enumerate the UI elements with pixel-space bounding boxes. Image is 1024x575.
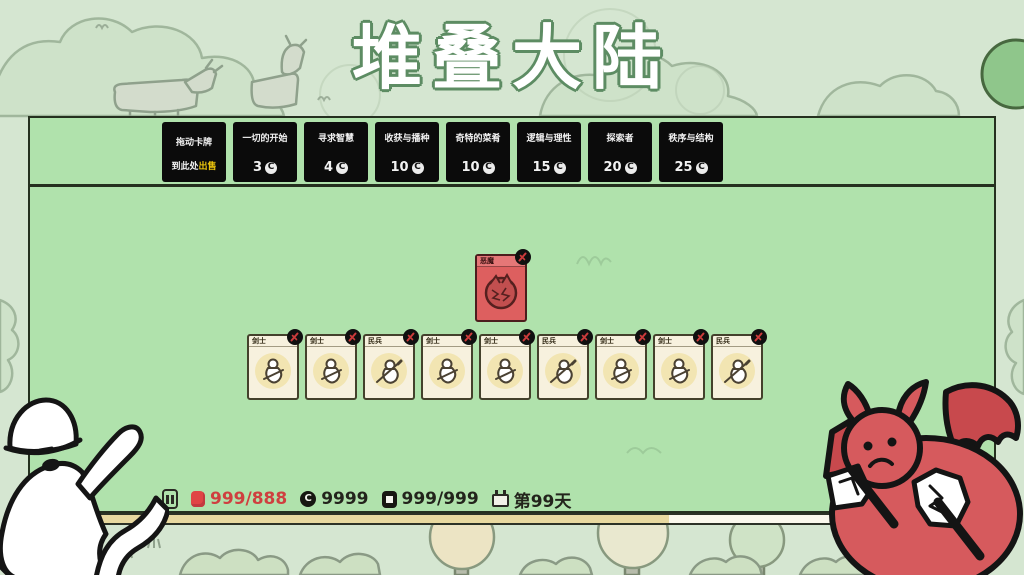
pack-shelf: 拖动卡牌 到此处出售 一切的开始 3C 寻求智慧 4C 收获与播种 10C 奇特… — [162, 122, 723, 182]
swordsman-card-art — [313, 353, 349, 389]
pack-cost-value: 25 — [674, 160, 692, 175]
unit-card-swordsman[interactable]: 剑士 — [595, 334, 647, 400]
coin-letter: C — [485, 163, 492, 172]
unit-card-label: 剑士 — [426, 337, 440, 345]
coin-icon: C — [483, 162, 495, 174]
unit-card-swordsman[interactable]: 剑士 — [305, 334, 357, 400]
enemy-card[interactable]: 恶魔 — [475, 254, 527, 322]
coin-icon: C — [300, 491, 316, 507]
day-indicator: 第99天 — [492, 487, 572, 512]
food-count: 999/888 — [210, 489, 287, 509]
card-capacity-icon-inner — [386, 496, 393, 503]
coin-icon: C — [696, 162, 708, 174]
attack-badge-icon — [635, 329, 651, 345]
pack-name: 寻求智慧 — [318, 131, 354, 144]
demon-character — [818, 374, 1024, 575]
unit-card-militia[interactable]: 民兵 — [363, 334, 415, 400]
day-counter: 第99天 — [514, 487, 572, 512]
board-doodle — [575, 248, 615, 268]
sell-word: 出售 — [199, 162, 217, 172]
attack-badge-icon — [577, 329, 593, 345]
pack-cost-value: 10 — [390, 160, 408, 175]
pack-cost-value: 10 — [461, 160, 479, 175]
pack-cost: 25C — [674, 160, 707, 175]
calendar-icon — [492, 494, 509, 507]
militia-card-art — [545, 353, 581, 389]
militia-card-art — [371, 353, 407, 389]
unit-card-swordsman[interactable]: 剑士 — [653, 334, 705, 400]
pack-seeking-wisdom[interactable]: 寻求智慧 4C — [304, 122, 368, 182]
unit-card-label: 剑士 — [484, 337, 498, 345]
sell-area[interactable]: 拖动卡牌 到此处出售 — [162, 122, 226, 182]
shelf-divider — [28, 184, 996, 187]
game-title: 堆叠大陆 — [0, 2, 1024, 103]
attack-badge-icon — [751, 329, 767, 345]
pack-order-and-structure[interactable]: 秩序与结构 25C — [659, 122, 723, 182]
pack-explorers[interactable]: 探索者 20C — [588, 122, 652, 182]
pack-cost: 20C — [603, 160, 636, 175]
unit-card-swordsman[interactable]: 剑士 — [479, 334, 531, 400]
coin-icon: C — [336, 162, 348, 174]
pack-cost-value: 4 — [324, 160, 333, 175]
pack-humble-beginnings[interactable]: 一切的开始 3C — [233, 122, 297, 182]
unit-card-swordsman[interactable]: 剑士 — [421, 334, 473, 400]
pack-name: 奇特的菜肴 — [455, 131, 500, 144]
militia-card-art — [719, 353, 755, 389]
unit-card-label: 剑士 — [310, 337, 324, 345]
coin-letter: C — [339, 163, 346, 172]
coin-letter: C — [627, 163, 634, 172]
coin-letter: C — [305, 494, 312, 504]
coin-letter: C — [268, 163, 275, 172]
demon-card-art — [482, 270, 520, 314]
unit-card-row: 剑士 剑士 民兵 剑士 — [247, 334, 763, 400]
swordsman-card-art — [255, 353, 291, 389]
villager-character — [0, 388, 169, 575]
pack-cost-value: 3 — [253, 160, 262, 175]
unit-card-militia[interactable]: 民兵 — [537, 334, 589, 400]
attack-badge-icon — [403, 329, 419, 345]
pack-cost-value: 15 — [532, 160, 550, 175]
pack-name: 秩序与结构 — [668, 131, 713, 144]
pack-cost-value: 20 — [603, 160, 621, 175]
coin-indicator: C9999 — [300, 489, 368, 509]
pack-curious-cuisine[interactable]: 奇特的菜肴 10C — [446, 122, 510, 182]
unit-card-label: 民兵 — [368, 337, 382, 345]
pack-cost: 10C — [390, 160, 423, 175]
attack-badge-icon — [287, 329, 303, 345]
status-bar: 999/888 C9999 999/999 第99天 — [162, 488, 571, 510]
attack-badge-icon — [519, 329, 535, 345]
card-capacity-count: 999/999 — [402, 489, 479, 509]
coin-icon: C — [265, 162, 277, 174]
unit-card-label: 民兵 — [716, 337, 730, 345]
attack-badge-icon — [515, 249, 531, 265]
pack-name: 一切的开始 — [242, 131, 287, 144]
pack-cost: 4C — [324, 160, 348, 175]
coin-count: 9999 — [321, 489, 368, 509]
coin-letter: C — [556, 163, 563, 172]
attack-badge-icon — [345, 329, 361, 345]
pack-name: 收获与播种 — [384, 131, 429, 144]
game-screen: 堆叠大陆 拖动卡牌 到此处出售 一切的开始 3C 寻求智慧 4C 收获与播种 1… — [0, 0, 1024, 575]
food-indicator: 999/888 — [191, 489, 287, 509]
unit-card-label: 剑士 — [600, 337, 614, 345]
pack-cost: 15C — [532, 160, 565, 175]
unit-card-swordsman[interactable]: 剑士 — [247, 334, 299, 400]
unit-card-label: 剑士 — [658, 337, 672, 345]
coin-letter: C — [698, 163, 705, 172]
card-capacity-icon — [382, 491, 397, 508]
card-capacity-indicator: 999/999 — [382, 489, 479, 509]
attack-badge-icon — [461, 329, 477, 345]
unit-card-militia[interactable]: 民兵 — [711, 334, 763, 400]
pause-icon — [171, 495, 174, 504]
pack-cost: 10C — [461, 160, 494, 175]
pack-name: 逻辑与理性 — [526, 131, 571, 144]
swordsman-card-art — [661, 353, 697, 389]
pack-cost: 3C — [253, 160, 277, 175]
sell-area-label-line1: 拖动卡牌 — [176, 135, 212, 148]
coin-icon: C — [412, 162, 424, 174]
coin-icon: C — [554, 162, 566, 174]
coin-icon: C — [625, 162, 637, 174]
swordsman-card-art — [429, 353, 465, 389]
food-icon — [191, 491, 205, 507]
pack-name: 探索者 — [606, 131, 633, 144]
coin-letter: C — [414, 163, 421, 172]
swordsman-card-art — [487, 353, 523, 389]
enemy-card-label: 恶魔 — [480, 257, 494, 265]
pack-logic-and-reason[interactable]: 逻辑与理性 15C — [517, 122, 581, 182]
pack-reap-and-sow[interactable]: 收获与播种 10C — [375, 122, 439, 182]
unit-card-label: 剑士 — [252, 337, 266, 345]
attack-badge-icon — [693, 329, 709, 345]
sell-area-text: 到此处 — [171, 162, 198, 172]
sell-area-label-line2: 到此处出售 — [171, 159, 216, 172]
unit-card-label: 民兵 — [542, 337, 556, 345]
board-doodle — [625, 443, 665, 459]
swordsman-card-art — [603, 353, 639, 389]
